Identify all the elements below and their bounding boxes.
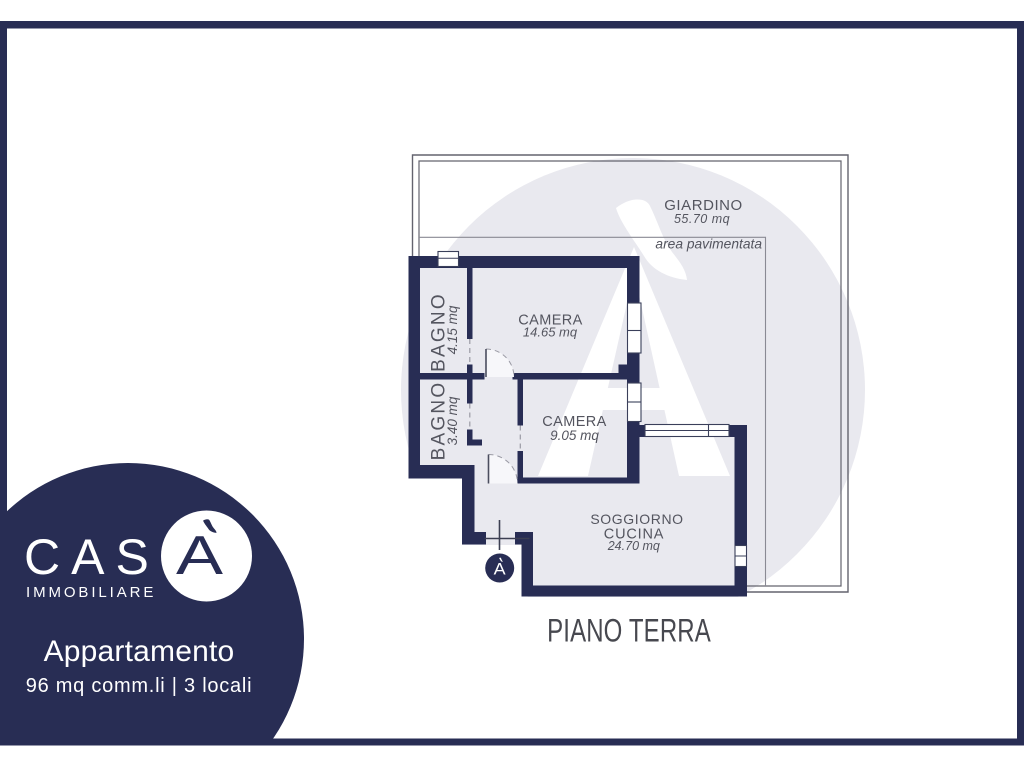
- svg-text:SOGGIORNO: SOGGIORNO: [590, 511, 683, 527]
- svg-text:4.15 mq: 4.15 mq: [445, 305, 460, 354]
- svg-text:9.05 mq: 9.05 mq: [550, 428, 599, 443]
- svg-text:55.70 mq: 55.70 mq: [674, 212, 730, 226]
- svg-text:14.65 mq: 14.65 mq: [523, 325, 578, 340]
- svg-text:A: A: [494, 560, 506, 578]
- svg-text:IMMOBILIARE: IMMOBILIARE: [26, 584, 156, 601]
- svg-text:A: A: [176, 524, 223, 586]
- svg-text:Appartamento: Appartamento: [44, 635, 235, 668]
- svg-text:PIANO TERRA: PIANO TERRA: [547, 612, 711, 648]
- svg-text:24.70 mq: 24.70 mq: [607, 539, 660, 553]
- svg-text:area pavimentata: area pavimentata: [655, 237, 762, 252]
- svg-text:CAS: CAS: [24, 529, 160, 585]
- svg-text:96 mq comm.li | 3 locali: 96 mq comm.li | 3 locali: [26, 675, 253, 697]
- svg-text:3.40 mq: 3.40 mq: [445, 396, 460, 445]
